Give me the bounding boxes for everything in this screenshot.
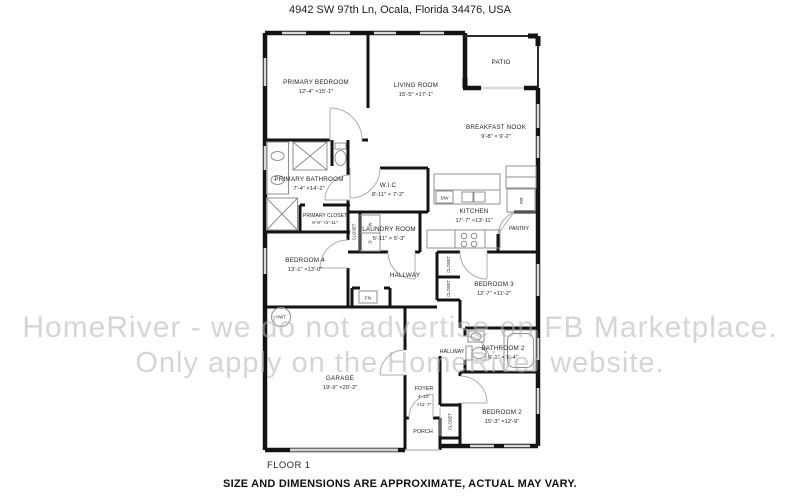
fr-label: FR — [519, 197, 525, 204]
kitchen-sink-icon — [462, 192, 473, 202]
room-dims-wic: 8'-11" × 7'-2" — [372, 192, 405, 198]
floorplan-page: 4942 SW 97th Ln, Ocala, Florida 34476, U… — [0, 0, 800, 499]
room-label-bedroom4: BEDROOM 4 — [285, 257, 325, 264]
room-label-porch: PORCH — [413, 429, 433, 435]
closet-label-bedroom3-a: CLOSET — [446, 256, 451, 273]
toilet-icon — [335, 151, 346, 166]
room-label-living-room: LIVING ROOM — [394, 82, 438, 89]
room-dims-garage: 19'-9" ×20'-2" — [323, 385, 358, 391]
room-label-bedroom2: BEDROOM 2 — [482, 409, 522, 416]
room-dims-foyer-2: ×11'-7" — [417, 402, 432, 408]
closet-label-porch: CLOSET — [448, 413, 453, 430]
room-label-pantry: PANTRY — [509, 226, 529, 232]
room-dims-living-room: 15'-5" ×17'-1" — [399, 92, 434, 98]
room-dims-breakfast-nook: 9'-8" × 9'-2" — [481, 134, 511, 140]
kitchen-sink-icon — [474, 192, 485, 202]
room-dims-bedroom4: 13'-1" ×13'-0" — [288, 267, 323, 273]
room-dims-bedroom3: 12'-7" ×11'-2" — [477, 291, 511, 297]
room-dims-primary-bedroom: 12'-4" ×15'-1" — [299, 89, 334, 95]
burner-icon — [461, 241, 467, 247]
toilet-tank — [335, 143, 346, 149]
room-labels: PRIMARY BEDROOM 12'-4" ×15'-1" LIVING RO… — [274, 59, 529, 435]
bath2-toilet-tank — [466, 346, 472, 360]
disclaimer-text: SIZE AND DIMENSIONS ARE APPROXIMATE, ACT… — [0, 478, 800, 490]
floor-label: FLOOR 1 — [267, 460, 310, 471]
room-dims-laundry: 5'-11" × 5'-3" — [373, 236, 406, 242]
room-dims-bedroom2: 15'-3" ×12'-9" — [485, 419, 520, 425]
room-label-bathroom2: BATHROOM 2 — [481, 345, 524, 352]
burner-icon — [471, 233, 477, 239]
room-label-breakfast-nook: BREAKFAST NOOK — [466, 124, 527, 131]
closet-label-bedroom3-b: CLOSET — [446, 280, 451, 297]
room-dims-foyer-1: 4'-10" — [418, 394, 431, 400]
room-dims-bathroom2: 9'-1" × 5'-4" — [488, 355, 518, 361]
room-label-wic: W.I.C — [380, 182, 397, 189]
sink-icon — [271, 152, 284, 161]
hwt-label: HWT — [276, 315, 286, 320]
room-label-bedroom3: BEDROOM 3 — [474, 281, 514, 288]
room-label-hallway-upper: HALLWAY — [390, 272, 421, 279]
closet-shelves-cross — [267, 198, 298, 230]
room-label-patio: PATIO — [492, 59, 511, 66]
room-label-garage: GARAGE — [326, 375, 354, 382]
bath2-sink-icon — [471, 333, 481, 341]
room-dims-kitchen: 17'-7" ×13'-11" — [455, 218, 492, 224]
dryer-label: D — [368, 240, 373, 243]
washer-label: W — [368, 222, 373, 226]
room-label-primary-closet: PRIMARY CLOSET — [303, 213, 347, 219]
counter-divider — [455, 230, 485, 248]
burner-icon — [471, 241, 477, 247]
floorplan-drawing: PRIMARY BEDROOM 12'-4" ×15'-1" LIVING RO… — [0, 0, 800, 499]
room-dims-primary-closet: 6'-0" ×2'-11" — [312, 220, 338, 226]
room-label-kitchen: KITCHEN — [459, 208, 488, 215]
room-label-foyer: FOYER — [415, 386, 434, 392]
room-label-primary-bedroom: PRIMARY BEDROOM — [283, 79, 349, 86]
room-label-primary-bathroom: PRIMARY BATHROOM — [274, 176, 343, 183]
shower-cross — [293, 142, 327, 170]
room-label-hallway-lower: HALLWAY — [440, 349, 465, 355]
room-dims-primary-bathroom: 7'-4" ×14'-2" — [293, 186, 324, 192]
closet-label-laundry: CLOSET — [352, 223, 357, 240]
dw-label: DW — [441, 196, 449, 202]
vanity-counter — [267, 142, 289, 194]
burner-icon — [461, 233, 467, 239]
fn-label: FN — [365, 296, 372, 302]
